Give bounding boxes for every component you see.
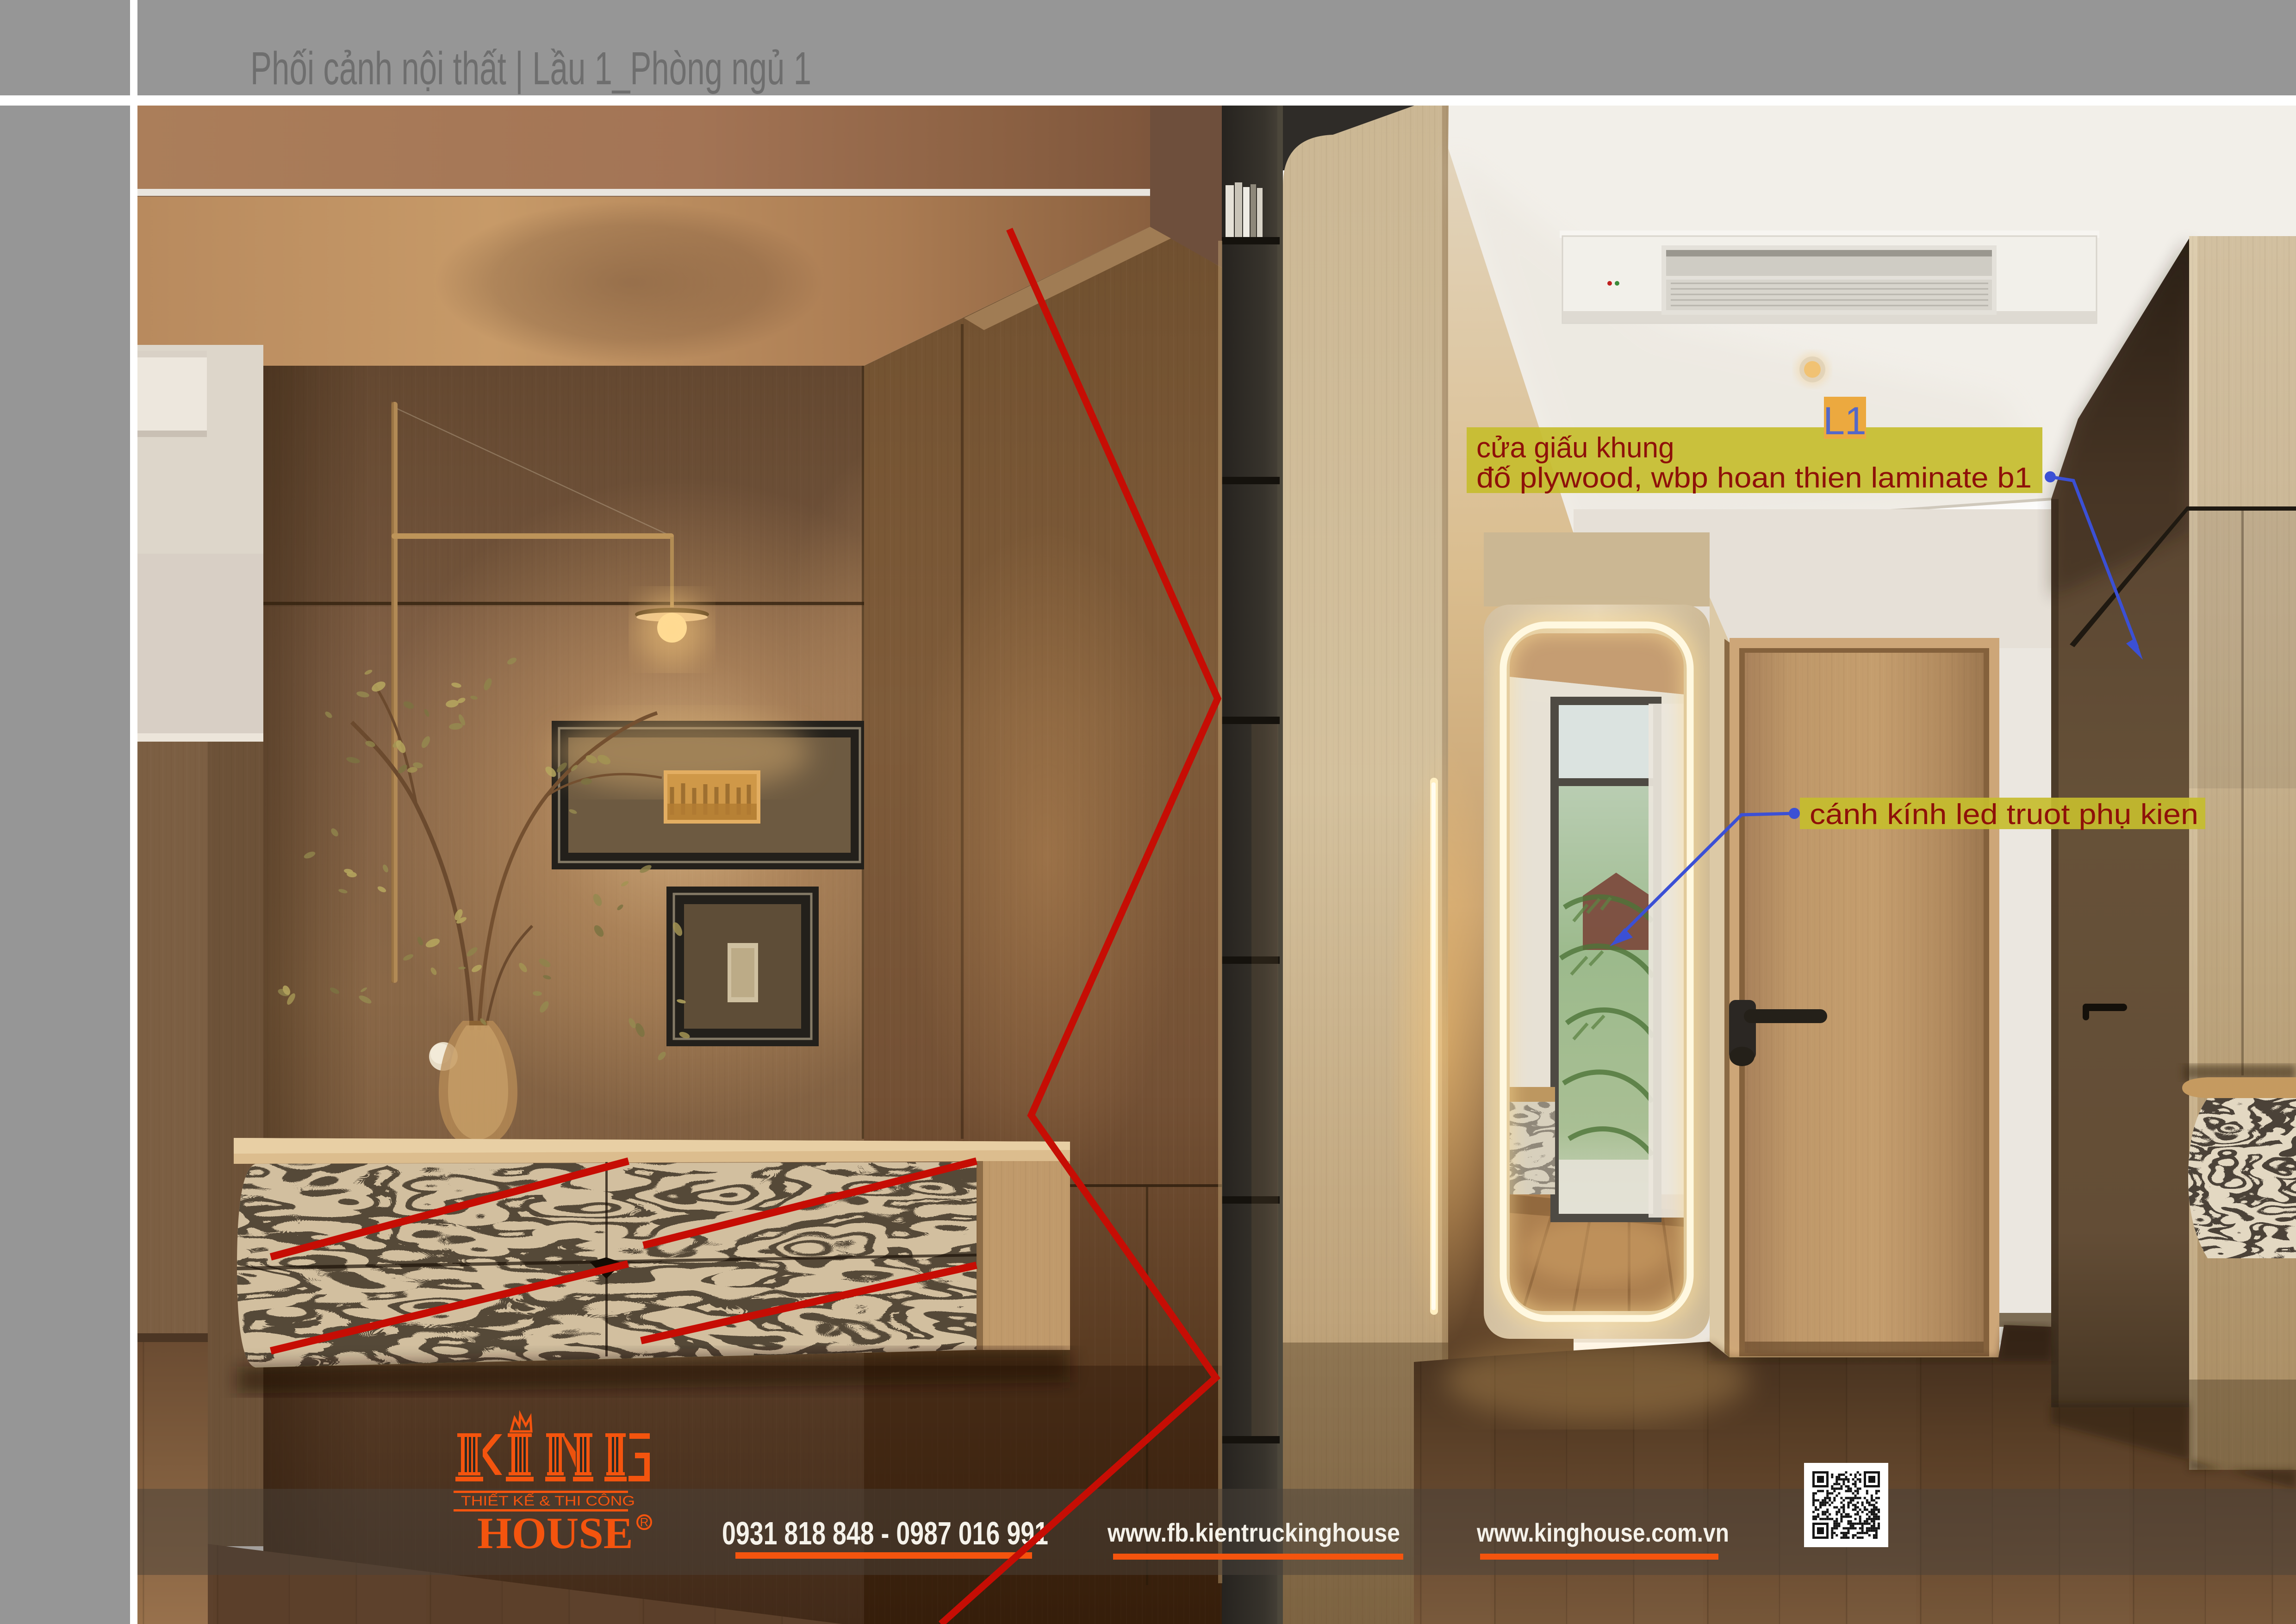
svg-text:Phối cảnh nội thất | Lầu 1_Phò: Phối cảnh nội thất | Lầu 1_Phòng ngủ 1 [250,43,811,94]
svg-text:L1: L1 [1823,399,1866,443]
svg-text:đố plywood, wbp hoan thien lam: đố plywood, wbp hoan thien laminate b1 [1476,462,2032,494]
svg-text:THIẾT KẾ & THI CÔNG: THIẾT KẾ & THI CÔNG [461,1493,635,1509]
svg-text:cửa giấu khung: cửa giấu khung [1476,432,1674,464]
svg-text:www.fb.kientruckinghouse: www.fb.kientruckinghouse [1107,1518,1400,1547]
svg-text:R: R [640,1515,649,1529]
svg-text:cánh kính led truot phụ kien: cánh kính led truot phụ kien [1810,799,2198,831]
svg-text:0931 818 848 - 0987 016 991: 0931 818 848 - 0987 016 991 [722,1515,1048,1551]
svg-text:HOUSE: HOUSE [477,1508,633,1558]
svg-text:www.kinghouse.com.vn: www.kinghouse.com.vn [1476,1518,1729,1547]
